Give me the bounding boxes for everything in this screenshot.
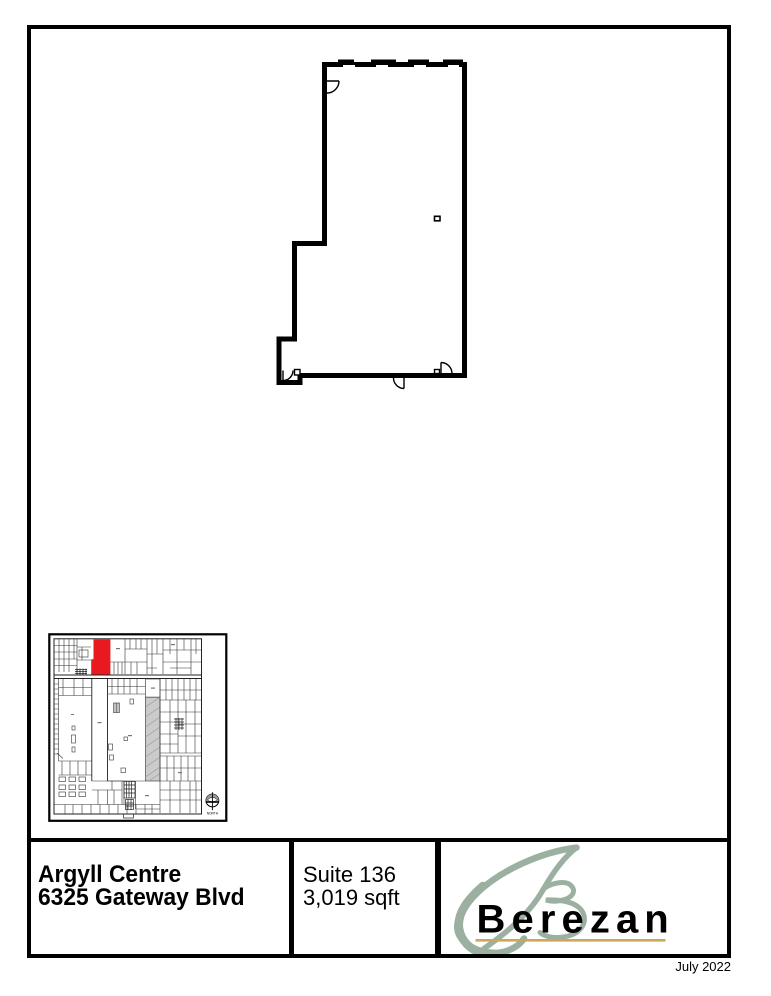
svg-text:Berezan: Berezan	[477, 898, 675, 942]
svg-text:NORTH: NORTH	[207, 812, 219, 816]
